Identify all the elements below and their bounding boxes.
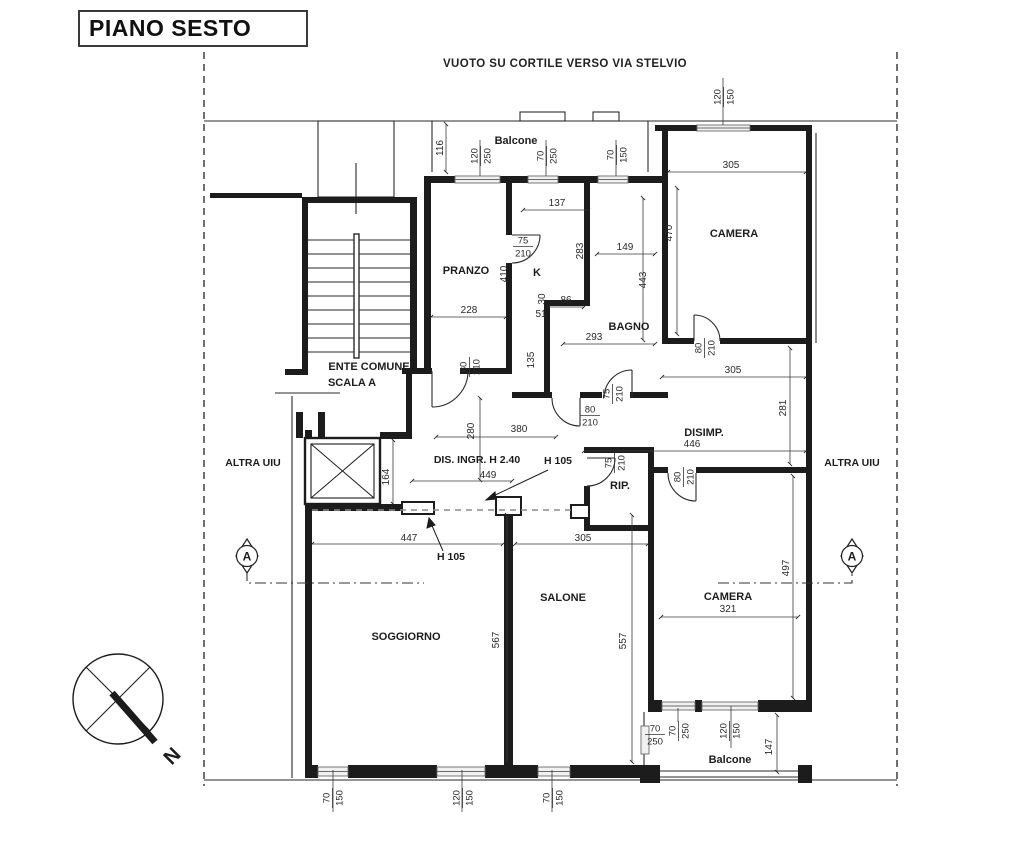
opening-size-label: 80210: [580, 405, 600, 429]
size-height: 150: [732, 723, 743, 739]
annotation-dis-ingr-h-2-40: DIS. INGR. H 2.40: [434, 454, 521, 466]
dimension-label: 280: [466, 422, 477, 439]
compass-needle: [112, 693, 155, 742]
size-width: 70: [668, 726, 679, 737]
size-height: 250: [647, 737, 663, 748]
annotation-h-105: H 105: [437, 551, 465, 563]
windows: [318, 125, 758, 776]
dimension-label: 164: [381, 468, 392, 485]
size-height: 150: [465, 790, 476, 806]
dimension-label: 147: [764, 738, 775, 755]
dimension-label: 557: [618, 632, 629, 649]
room-label-ente-comune: ENTE COMUNE: [328, 361, 409, 373]
dimension-label: 567: [491, 631, 502, 648]
floor-plan-page: PIANO SESTO VUOTO SU CORTILE VERSO VIA S…: [0, 0, 1024, 842]
size-height: 210: [686, 469, 697, 485]
size-height: 210: [615, 386, 626, 402]
dimension-label: 380: [511, 424, 528, 435]
dimension-label: 305: [723, 160, 740, 171]
opening-size-label: 120150: [452, 788, 476, 808]
dimension-label: 228: [461, 305, 478, 316]
room-label-pranzo: PRANZO: [443, 265, 490, 277]
size-height: 250: [549, 148, 560, 164]
annotation-altra-uiu: ALTRA UIU: [824, 457, 879, 469]
dimension-label: 51: [535, 309, 547, 320]
room-label-bagno: BAGNO: [609, 321, 650, 333]
size-width: 120: [713, 89, 724, 105]
dimension-label: 283: [575, 242, 586, 259]
dimension-label: 293: [586, 332, 603, 343]
north-label: N: [158, 742, 184, 768]
section-line: [247, 570, 852, 583]
room-label-disimp: DISIMP.: [684, 427, 724, 439]
dimension-label: 443: [638, 271, 649, 288]
section-marker: A: [841, 539, 863, 573]
room-label-scala-a: SCALA A: [328, 377, 376, 389]
dimension-label: 149: [617, 242, 634, 253]
dimension-label: 321: [720, 604, 737, 615]
staircase: [308, 234, 410, 358]
room-label-balcone: Balcone: [495, 135, 538, 147]
size-width: 120: [452, 790, 463, 806]
opening-size-label: 75210: [604, 453, 628, 473]
opening-size-label: 75210: [513, 236, 533, 260]
dimension-label: 305: [725, 365, 742, 376]
size-width: 75: [604, 458, 615, 469]
room-label-balcone: Balcone: [709, 754, 752, 766]
section-marker: A: [236, 539, 258, 573]
size-width: 80: [459, 362, 470, 373]
dimension-label: 116: [435, 140, 446, 156]
size-height: 150: [555, 790, 566, 806]
size-height: 210: [582, 418, 598, 429]
size-width: 70: [650, 724, 661, 735]
dimension-label: 410: [499, 265, 510, 282]
size-height: 210: [515, 249, 531, 260]
elevator: [305, 438, 380, 504]
size-height: 210: [707, 340, 718, 356]
section-marker-letter: A: [243, 550, 252, 564]
dimension-label: 281: [778, 399, 789, 416]
opening-size-label: 120150: [719, 721, 743, 741]
size-width: 70: [322, 793, 333, 804]
size-width: 75: [602, 389, 613, 400]
size-height: 210: [617, 455, 628, 471]
dimension-label: 305: [575, 533, 592, 544]
opening-size-label: 70250: [536, 146, 560, 166]
size-width: 80: [585, 405, 596, 416]
opening-size-label: 70150: [542, 788, 566, 808]
dimension-label: 447: [401, 533, 418, 544]
size-height: 150: [619, 147, 630, 163]
room-label-k: K: [533, 267, 541, 279]
beam-piers: [402, 497, 589, 518]
size-height: 250: [483, 148, 494, 164]
opening-size-label: 120150: [713, 87, 737, 107]
dimension-label: 137: [549, 198, 566, 209]
size-height: 210: [472, 359, 483, 375]
size-height: 150: [335, 790, 346, 806]
size-width: 120: [470, 148, 481, 164]
size-width: 80: [694, 343, 705, 354]
size-width: 75: [518, 236, 529, 247]
size-width: 80: [673, 472, 684, 483]
opening-size-label: 70250: [668, 721, 692, 741]
size-width: 70: [542, 793, 553, 804]
opening-size-label: 70150: [322, 788, 346, 808]
dimension-label: 470: [664, 224, 675, 241]
compass: N: [73, 654, 184, 768]
size-width: 70: [536, 151, 547, 162]
dimension-label: 135: [526, 351, 537, 368]
dimension-label: 449: [480, 470, 497, 481]
room-label-camera: CAMERA: [704, 591, 752, 603]
size-width: 70: [606, 150, 617, 161]
size-width: 120: [719, 723, 730, 739]
opening-size-label: 80210: [673, 467, 697, 487]
dimension-label: 30: [537, 293, 548, 305]
size-height: 150: [726, 89, 737, 105]
floor-plan-svg: N PRANZOKBAGNOCAMERADISIMP.RIP.SOGGIORNO…: [0, 0, 1024, 842]
room-label-rip: RIP.: [610, 480, 630, 492]
opening-size-label: 70150: [606, 145, 630, 165]
opening-size-label: 75210: [602, 384, 626, 404]
dimension-label: 497: [781, 559, 792, 576]
room-label-soggiorno: SOGGIORNO: [371, 631, 441, 643]
room-label-salone: SALONE: [540, 592, 586, 604]
dimension-label: 446: [684, 439, 701, 450]
dimension-label: 86: [560, 295, 572, 306]
size-height: 250: [681, 723, 692, 739]
room-label-camera: CAMERA: [710, 228, 758, 240]
opening-size-label: 80210: [694, 338, 718, 358]
annotation-altra-uiu: ALTRA UIU: [225, 457, 280, 469]
annotation-h-105: H 105: [544, 455, 572, 467]
opening-size-label: 120250: [470, 146, 494, 166]
section-marker-letter: A: [848, 550, 857, 564]
